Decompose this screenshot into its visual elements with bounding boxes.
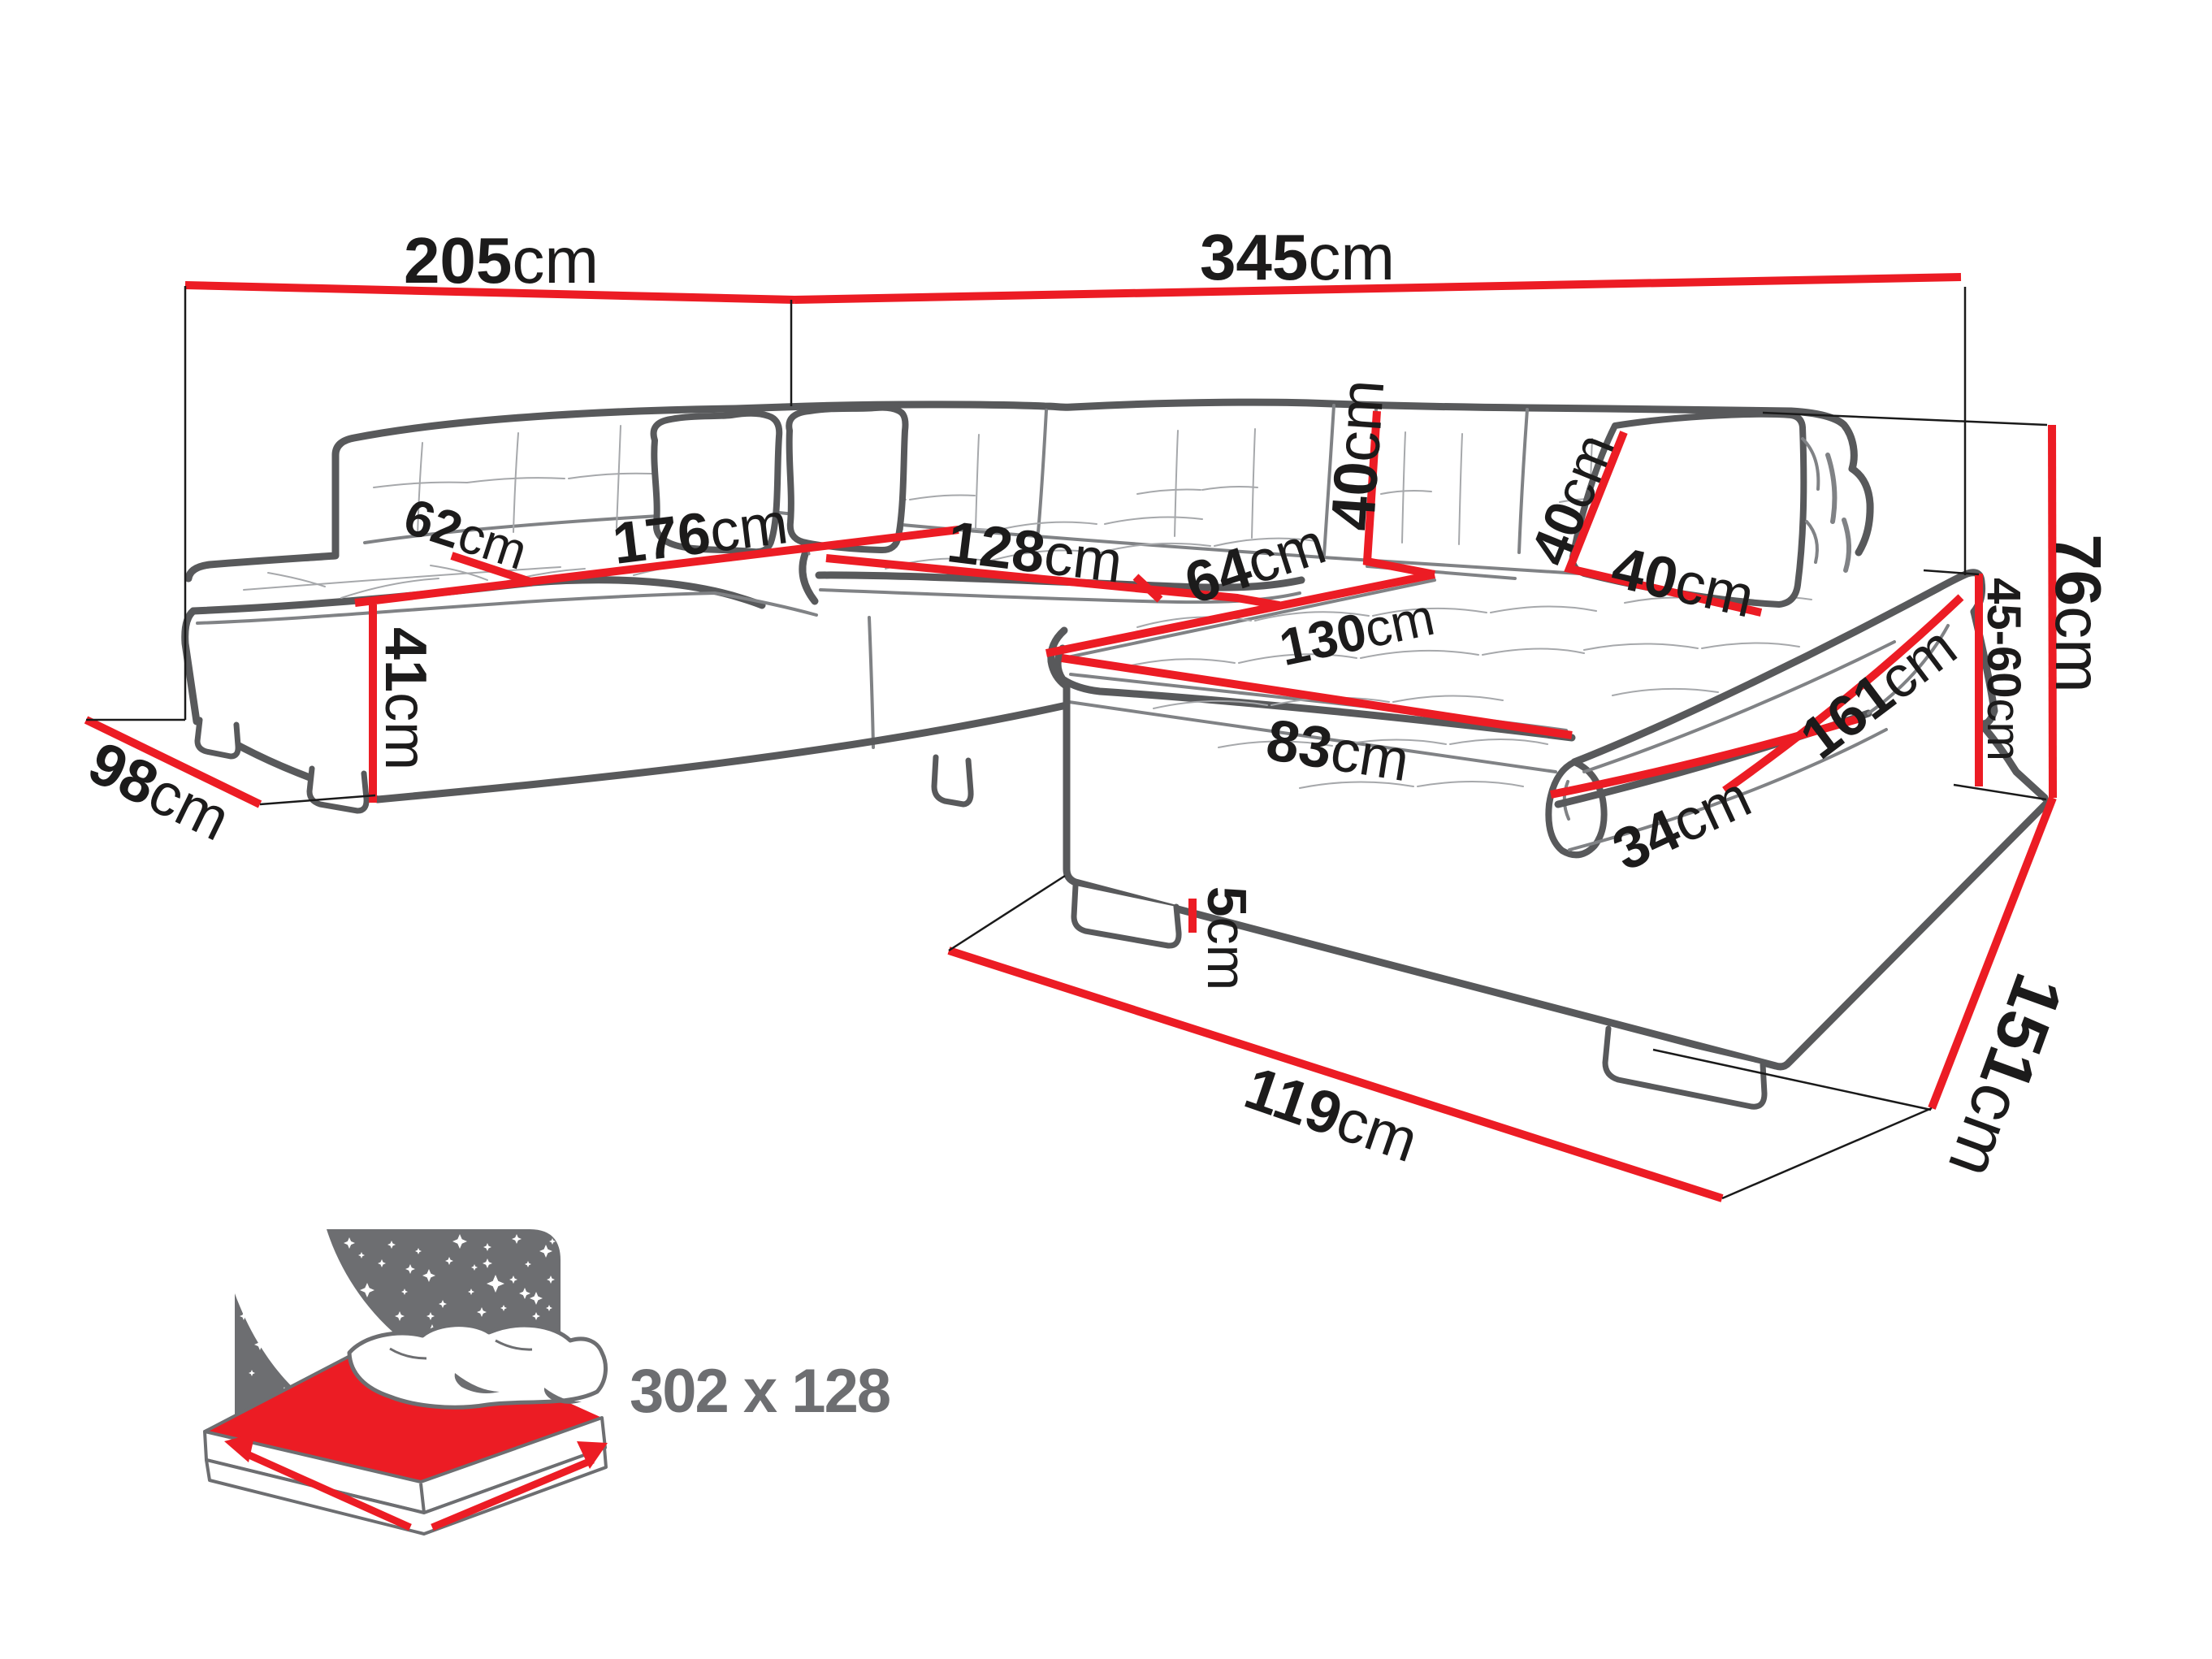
svg-text:151cm: 151cm: [1933, 964, 2078, 1188]
svg-text:45-60cm: 45-60cm: [1977, 578, 2030, 761]
svg-text:161cm: 161cm: [1789, 614, 1968, 772]
svg-text:128cm: 128cm: [944, 509, 1126, 596]
svg-text:205cm: 205cm: [404, 224, 599, 297]
svg-text:302 x 128: 302 x 128: [630, 1357, 890, 1426]
svg-text:41cm: 41cm: [373, 627, 438, 770]
svg-text:76cm: 76cm: [2042, 534, 2115, 693]
svg-text:176cm: 176cm: [609, 491, 791, 577]
svg-text:5cm: 5cm: [1196, 886, 1258, 990]
svg-text:345cm: 345cm: [1200, 221, 1395, 293]
svg-text:40cm: 40cm: [1318, 377, 1398, 532]
